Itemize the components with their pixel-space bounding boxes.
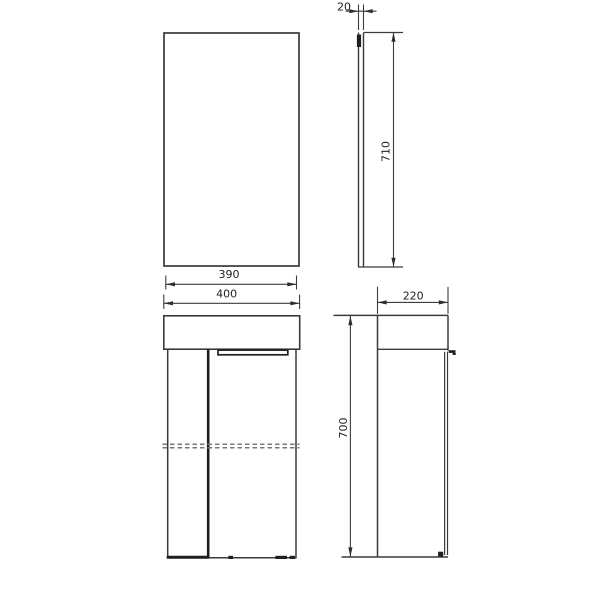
mirror-panel-outline — [164, 33, 299, 266]
dimension-cabinet-depth: 220 — [378, 287, 449, 314]
cabinet-width-dim-label: 400 — [216, 287, 237, 300]
dimension-mirror-thickness: 20 — [337, 0, 377, 30]
cabinet-body-outline — [168, 349, 296, 557]
bottom-foot-mark — [228, 556, 233, 559]
arrowhead-icon — [290, 301, 299, 305]
arrowhead-icon — [164, 301, 173, 305]
cabinet-inner-width-dim-label: 390 — [219, 268, 240, 281]
drawing-svg: 20 710 390 — [0, 0, 600, 600]
mirror-side-view: 20 710 — [337, 0, 403, 267]
door-handle-profile — [449, 350, 456, 353]
arrowhead-icon — [391, 258, 395, 267]
wall-mount-bracket — [357, 35, 361, 47]
cabinet-front-view: 390 400 — [163, 268, 300, 559]
mirror-thickness-dim-label: 20 — [337, 0, 351, 13]
arrowhead-icon — [391, 33, 395, 42]
technical-drawing-canvas: 20 710 390 — [0, 0, 600, 600]
arrowhead-icon — [348, 316, 352, 325]
cabinet-depth-dim-label: 220 — [403, 289, 424, 302]
cabinet-height-dim-label: 700 — [337, 418, 350, 439]
arrowhead-icon — [378, 300, 387, 304]
arrowhead-icon — [439, 300, 448, 304]
door-handle — [218, 350, 288, 355]
bottom-foot-mark — [275, 556, 287, 559]
cabinet-side-view: 220 700 — [334, 287, 456, 557]
arrowhead-icon — [166, 282, 175, 286]
dimension-cabinet-width: 400 — [164, 287, 300, 309]
dimension-cabinet-height: 700 — [337, 316, 352, 557]
arrowhead-icon — [287, 282, 296, 286]
arrowhead-icon — [364, 9, 373, 13]
door-handle-profile — [453, 353, 456, 355]
countertop-front-outline — [164, 316, 300, 349]
mirror-front-view — [164, 33, 299, 266]
bottom-foot-mark — [290, 556, 295, 559]
arrowhead-icon — [348, 547, 352, 556]
mirror-height-dim-label: 710 — [379, 141, 392, 162]
dimension-cabinet-inner-width: 390 — [166, 268, 297, 290]
dimension-mirror-height: 710 — [379, 33, 395, 268]
door-bottom-mark — [438, 552, 443, 557]
